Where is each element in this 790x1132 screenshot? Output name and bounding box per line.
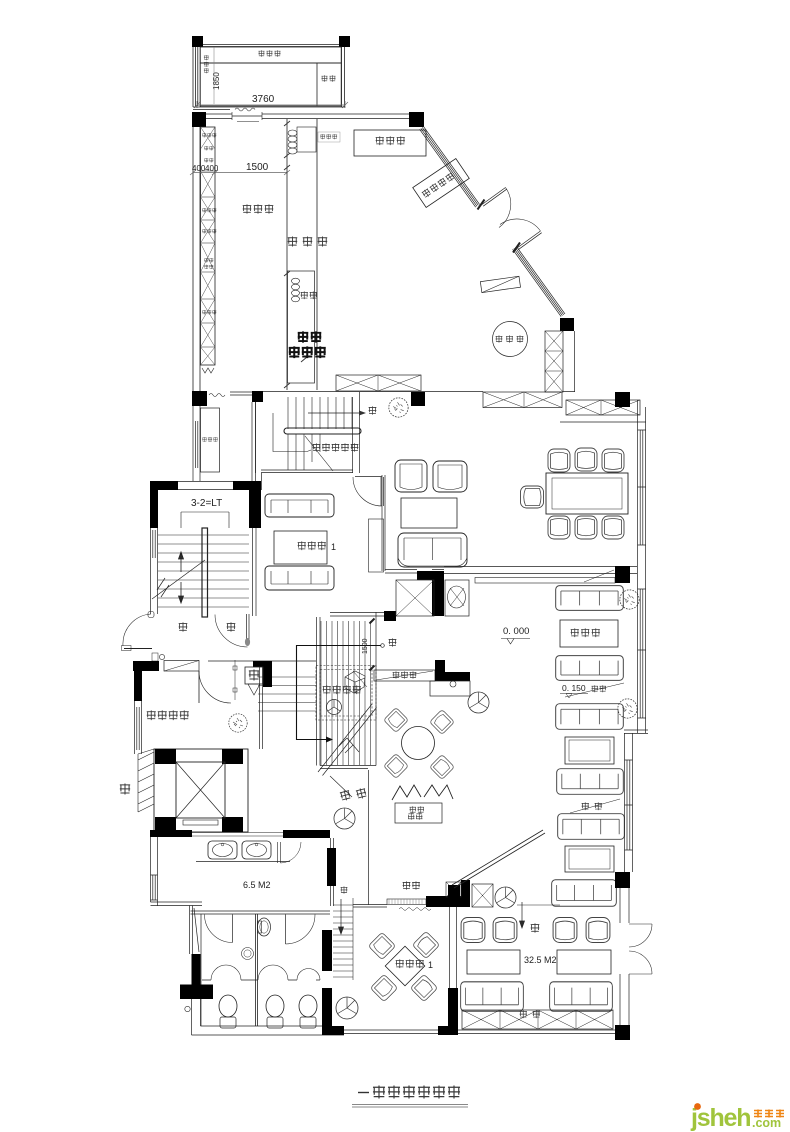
svg-text:1500: 1500 <box>246 162 269 173</box>
svg-text:1: 1 <box>428 960 433 970</box>
svg-text:1850: 1850 <box>212 72 221 90</box>
svg-text:1: 1 <box>331 542 336 552</box>
svg-text:3760: 3760 <box>252 94 275 105</box>
svg-text:3-2=LT: 3-2=LT <box>191 498 222 509</box>
svg-text:6.5 M2: 6.5 M2 <box>243 880 271 890</box>
svg-text:.com: .com <box>752 1116 781 1130</box>
svg-text:32.5 M2: 32.5 M2 <box>524 955 557 965</box>
svg-text:0. 000: 0. 000 <box>503 626 529 637</box>
svg-text:400: 400 <box>205 164 219 173</box>
svg-text:0. 150: 0. 150 <box>562 683 586 693</box>
svg-text:1500: 1500 <box>362 638 369 654</box>
